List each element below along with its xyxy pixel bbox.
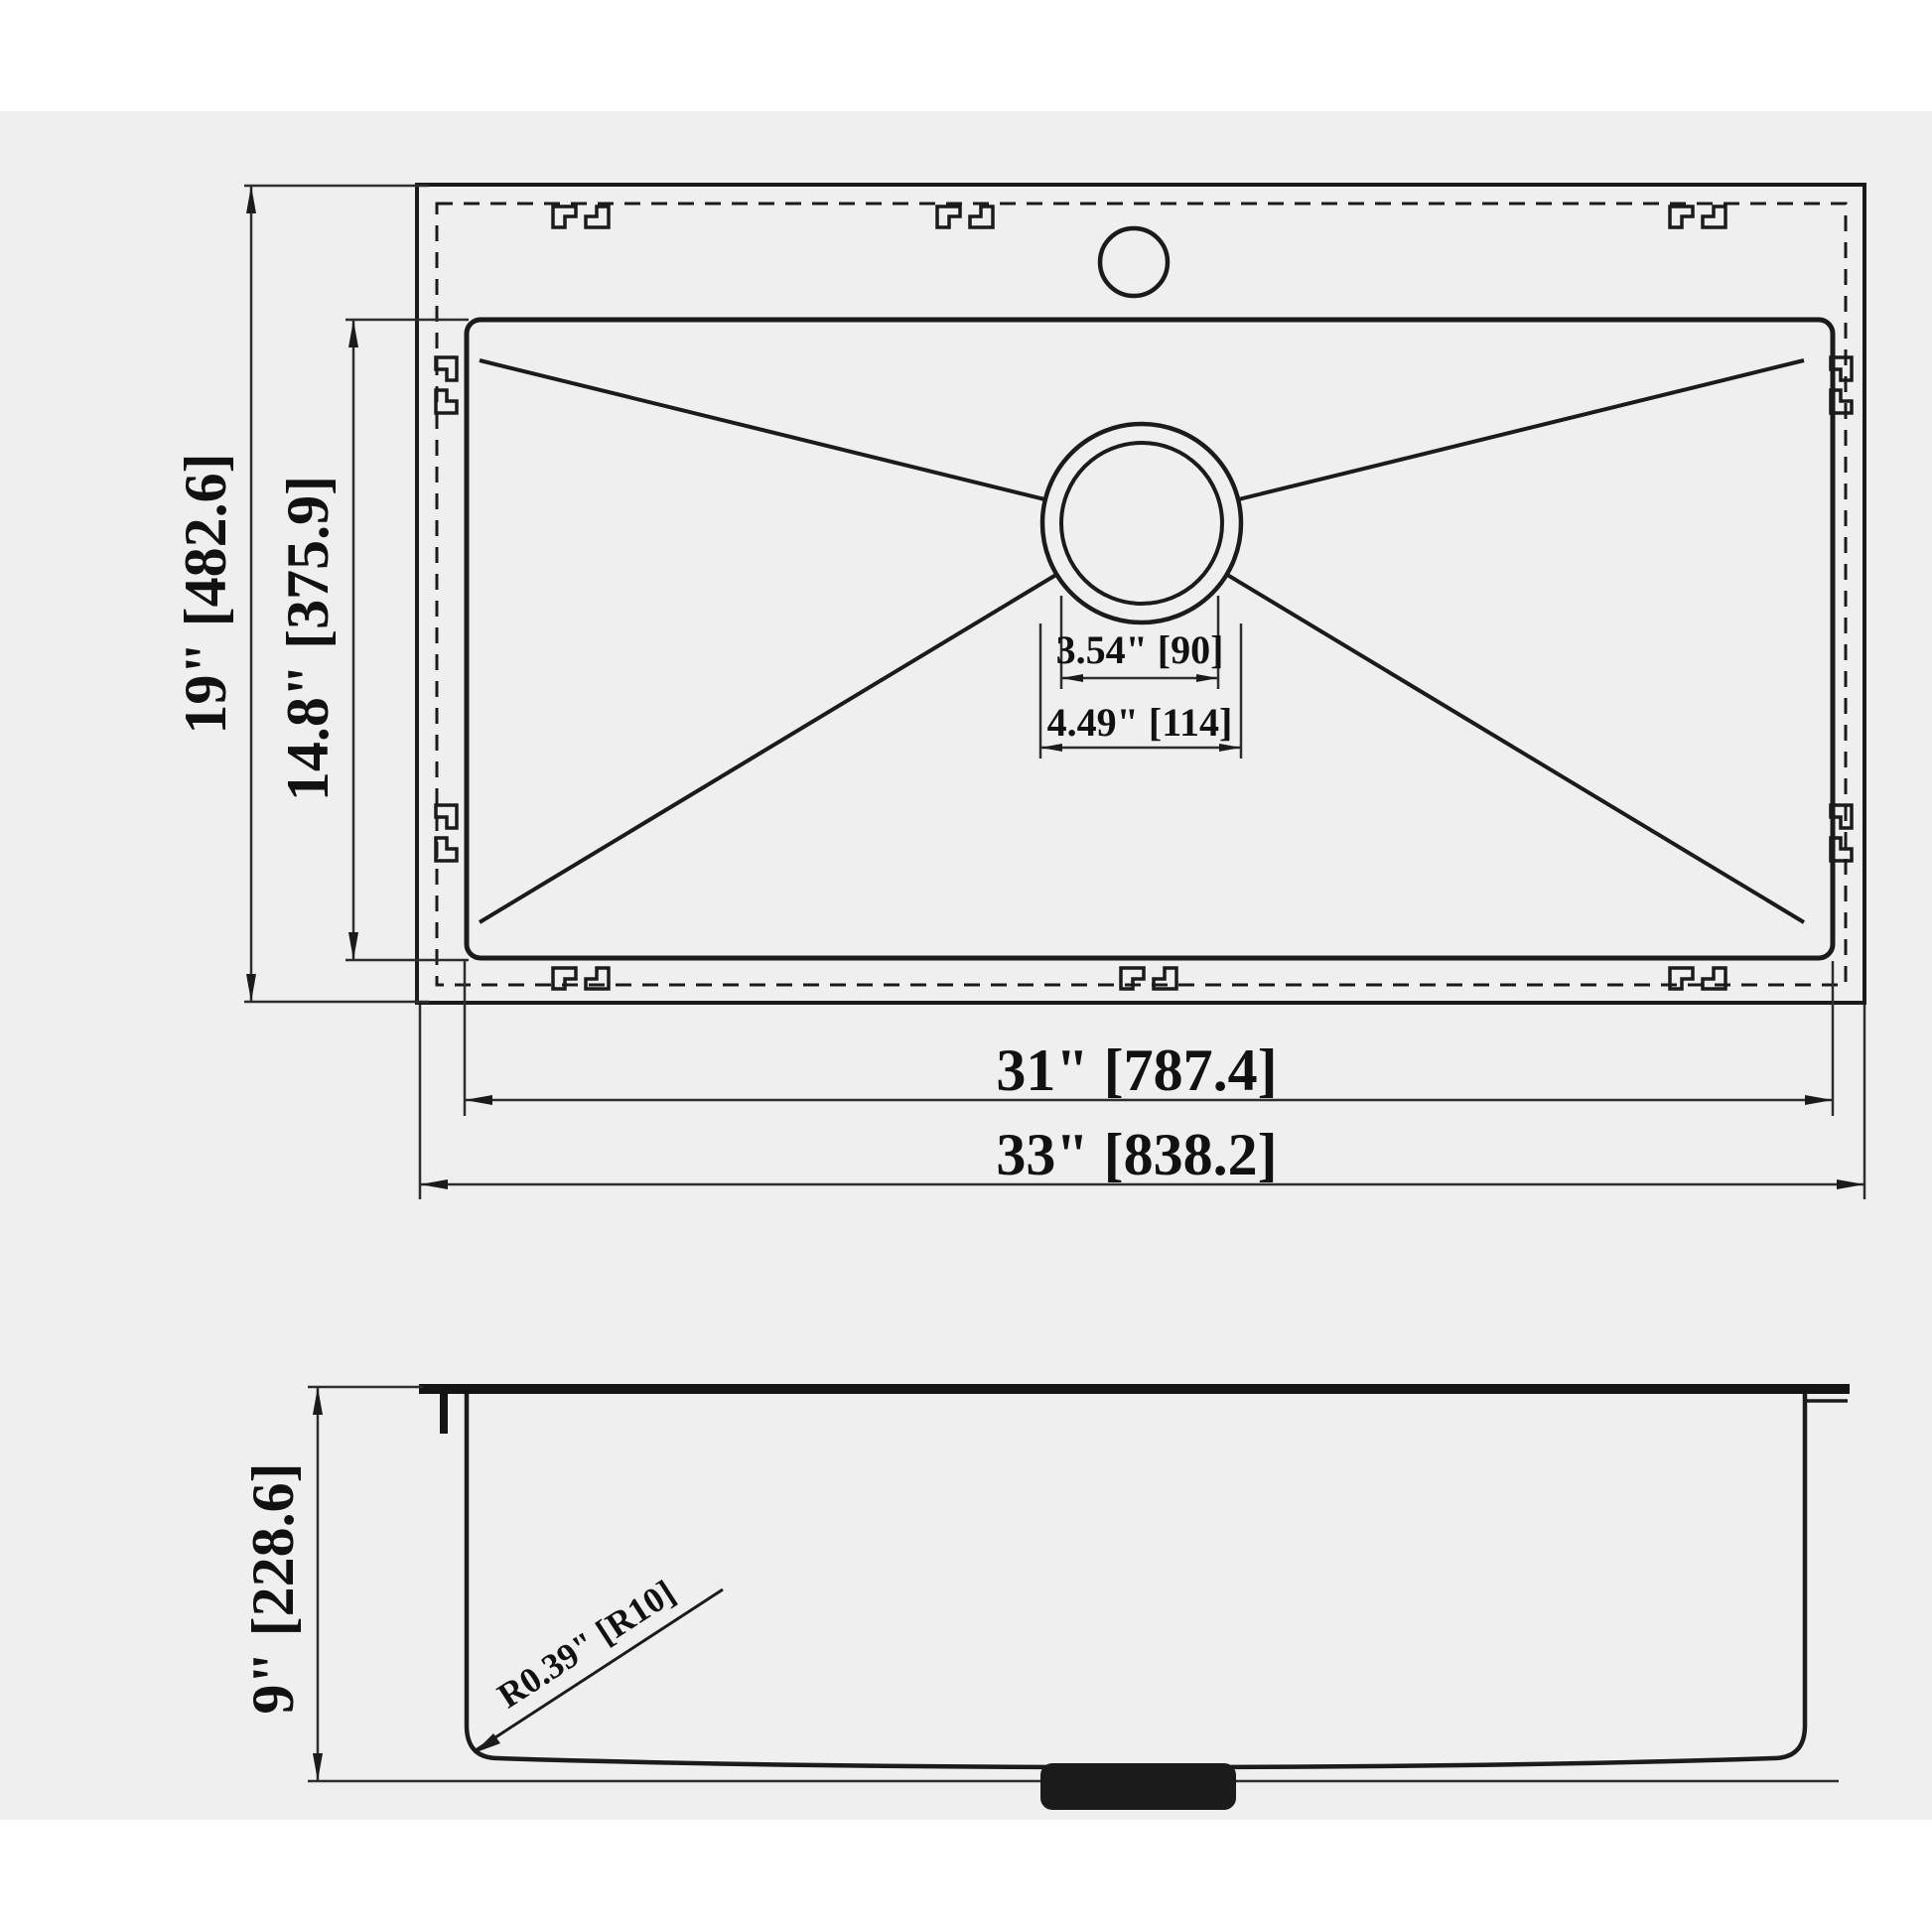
dim-label-overall-width: 33" [838.2] <box>996 1122 1277 1187</box>
drain-outer-circle <box>1042 424 1241 622</box>
dim-label-depth: 9" [228.6] <box>240 1462 306 1714</box>
drain-fitting <box>1040 1763 1236 1810</box>
dim-label-bowl-height: 14.8" [375.9] <box>275 476 341 801</box>
faucet-hole-circle <box>1100 228 1168 296</box>
dim-label-overall-height: 19" [482.6] <box>173 453 238 734</box>
technical-drawing-page: 19" [482.6] 14.8" [375.9] 3.54" [90] <box>0 0 1932 1932</box>
dim-label-drain-outer: 4.49" [114] <box>1047 700 1233 745</box>
sink-drawing-svg: 19" [482.6] 14.8" [375.9] 3.54" [90] <box>0 0 1932 1932</box>
dim-label-drain-inner: 3.54" [90] <box>1056 627 1224 672</box>
dim-label-bowl-width: 31" [787.4] <box>996 1037 1277 1103</box>
